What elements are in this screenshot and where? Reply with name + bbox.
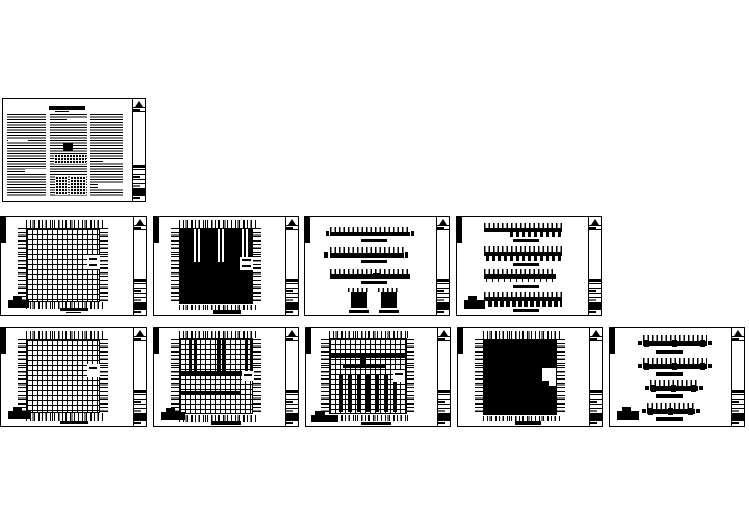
title-block-cell xyxy=(286,302,298,309)
title-block-text-blob xyxy=(134,290,141,292)
binding-mark xyxy=(305,217,310,243)
title-block-spacer xyxy=(286,230,298,279)
binding-mark xyxy=(610,328,615,354)
elevation-bar xyxy=(330,253,404,258)
title-block-cell xyxy=(286,420,298,426)
drawing-title-blob xyxy=(361,422,391,425)
dimension-ticks-right xyxy=(100,228,108,302)
dimension-ticks-right xyxy=(100,339,108,413)
title-block-text-blob xyxy=(589,299,596,301)
drawing-title-blob xyxy=(361,281,387,284)
title-block-text-blob xyxy=(286,227,293,229)
title-block-logo-cell xyxy=(437,217,449,226)
elevation-end-mark xyxy=(696,409,700,413)
title-block-spacer xyxy=(134,341,146,390)
dimension-ticks-top xyxy=(329,331,409,338)
drawing-title-blob xyxy=(656,372,683,376)
drawing-title-blob xyxy=(213,310,241,314)
drawing-title-blob xyxy=(349,310,369,313)
notes-figure-blob xyxy=(63,143,73,151)
triangle-logo-icon xyxy=(439,219,447,225)
elevation-end-mark xyxy=(638,341,642,345)
title-block-text-blob xyxy=(133,197,140,199)
drawing-title-blob xyxy=(513,263,539,266)
plan-column-bar xyxy=(194,338,197,372)
triangle-logo-icon xyxy=(135,101,143,107)
elevation-end-mark xyxy=(699,386,703,390)
dimension-ticks-bottom xyxy=(26,413,104,421)
plan-white-line xyxy=(198,229,200,262)
dimension-ticks-right xyxy=(253,228,261,303)
notch-label-blob xyxy=(89,258,97,260)
drawing-title-blob xyxy=(211,421,241,425)
elevation-end-mark xyxy=(708,341,712,345)
title-block-text-blob xyxy=(134,401,141,403)
title-block-text-blob xyxy=(732,401,739,403)
plan-column-bar xyxy=(245,338,248,372)
title-block-cell xyxy=(134,420,146,426)
elevation-end-mark xyxy=(642,409,646,413)
title-block-text-blob xyxy=(286,401,293,403)
dimension-ticks-left xyxy=(171,339,179,413)
sheet-heading-blob xyxy=(49,106,85,110)
title-block-text-blob xyxy=(134,410,141,412)
binding-mark xyxy=(1,328,6,354)
plan-beam-band xyxy=(179,391,241,395)
plan-white-line xyxy=(194,229,196,262)
title-block-text-blob xyxy=(286,311,293,313)
drawing-title-blob xyxy=(379,310,399,313)
dimension-ticks-left xyxy=(321,339,329,414)
elevation-blob xyxy=(688,408,693,415)
title-block xyxy=(133,328,146,426)
triangle-logo-icon xyxy=(440,330,448,336)
title-block-spacer xyxy=(732,341,744,390)
title-block-text-blob xyxy=(134,299,141,301)
title-block xyxy=(285,217,298,315)
dimension-ticks-bottom xyxy=(329,415,409,421)
title-block-logo-cell xyxy=(438,328,450,337)
title-block-logo-cell xyxy=(286,217,298,226)
drawing-title-blob xyxy=(361,260,387,263)
elevation-blob xyxy=(672,340,677,347)
title-block-text-blob xyxy=(437,299,444,301)
title-block-text-blob xyxy=(590,410,597,412)
notes-text-column xyxy=(7,114,46,196)
elevation-blob xyxy=(671,385,676,392)
dimension-ticks-top xyxy=(26,220,104,228)
title-block-text-blob xyxy=(590,422,597,424)
notch-label-blob xyxy=(242,259,251,261)
elevation-blob xyxy=(700,363,705,370)
sheet-heading-underline xyxy=(55,111,69,112)
dimension-ticks-left xyxy=(18,339,26,413)
title-block-spacer xyxy=(590,341,602,390)
title-block-text-blob xyxy=(732,410,739,412)
title-block xyxy=(436,217,449,315)
drawing-title-blob xyxy=(60,308,88,311)
title-block-text-blob xyxy=(438,338,445,340)
notch-label-blob xyxy=(395,373,403,375)
dimension-ticks-top xyxy=(483,331,561,339)
title-block-logo-cell xyxy=(589,217,601,226)
title-block-cell xyxy=(590,413,602,420)
title-block-cell xyxy=(134,302,146,309)
title-block-cell xyxy=(134,309,146,315)
legend-block xyxy=(464,300,485,309)
elevation-bar xyxy=(330,232,410,236)
elevation-end-mark xyxy=(708,364,712,368)
notch-label-blob xyxy=(89,264,97,266)
elevation-window-row xyxy=(486,256,562,261)
title-block-text-blob xyxy=(590,401,597,403)
plan-column-bar xyxy=(384,374,388,412)
title-block-text-blob xyxy=(134,311,141,313)
elevation-end-mark xyxy=(645,386,649,390)
drawing-title-blob xyxy=(60,421,88,424)
detail-figure xyxy=(381,292,397,308)
plan-white-line xyxy=(222,229,224,262)
sheet-08-grid-plan-columns xyxy=(305,327,451,427)
drawing-set-canvas xyxy=(0,0,749,530)
title-block-cell xyxy=(438,420,450,426)
drawing-title-blob xyxy=(513,309,539,312)
text-gap xyxy=(98,184,123,188)
notch-label-blob xyxy=(244,374,252,376)
elevation-blob xyxy=(644,363,649,370)
triangle-logo-icon xyxy=(288,330,296,336)
title-block-cell xyxy=(732,413,744,420)
text-gap xyxy=(8,139,28,142)
drawing-title-blob xyxy=(656,417,683,421)
title-block-cell xyxy=(438,413,450,420)
sheet-10-elevations xyxy=(609,327,745,427)
elevation-end-mark xyxy=(326,231,329,236)
binding-mark xyxy=(306,328,311,354)
drawing-title-blob xyxy=(656,394,683,398)
elevation-end-mark xyxy=(638,364,642,368)
title-block-logo-cell xyxy=(590,328,602,337)
legend-block xyxy=(161,412,185,420)
title-block-text-blob xyxy=(437,311,444,313)
binding-mark xyxy=(154,217,159,243)
title-block xyxy=(437,328,450,426)
title-block-text-blob xyxy=(437,227,444,229)
title-block-logo-cell xyxy=(134,328,146,337)
elevation-bar xyxy=(330,274,410,279)
dimension-ticks-top xyxy=(179,220,257,228)
title-block-cell xyxy=(732,420,744,426)
notch-label-blob xyxy=(89,367,97,369)
title-block-text-blob xyxy=(732,338,739,340)
notes-table xyxy=(54,154,86,164)
text-gap xyxy=(103,159,123,162)
triangle-logo-icon xyxy=(734,330,742,336)
title-block xyxy=(589,328,602,426)
drawing-title-blob xyxy=(361,239,387,242)
title-block-logo-cell xyxy=(134,217,146,226)
title-block-text-blob xyxy=(438,422,445,424)
binding-mark xyxy=(154,328,159,354)
title-block-text-blob xyxy=(286,410,293,412)
title-block-spacer xyxy=(437,230,449,279)
title-block-cell xyxy=(437,309,449,315)
title-block-cell xyxy=(589,302,601,309)
notes-table xyxy=(55,176,68,195)
text-gap xyxy=(67,119,87,122)
title-block-logo-cell xyxy=(732,328,744,337)
title-block-text-blob xyxy=(438,410,445,412)
plan-beam-band xyxy=(329,353,407,358)
title-block-text-blob xyxy=(286,422,293,424)
title-block-cell xyxy=(134,413,146,420)
dimension-ticks-right xyxy=(253,339,261,413)
title-block-text-blob xyxy=(134,422,141,424)
triangle-logo-icon xyxy=(288,219,296,225)
title-block-logo-cell xyxy=(286,328,298,337)
title-block xyxy=(285,328,298,426)
title-block-cell xyxy=(589,309,601,315)
plan-column-bar xyxy=(366,374,370,412)
legend-block xyxy=(311,415,338,422)
dimension-ticks-top xyxy=(179,331,257,338)
drawing-title-underline xyxy=(66,312,81,313)
plan-notch xyxy=(87,364,100,377)
title-block-text-blob xyxy=(133,176,140,178)
plan-column-bar xyxy=(250,338,253,372)
title-block-spacer xyxy=(589,230,601,279)
triangle-logo-icon xyxy=(136,330,144,336)
title-block-text-blob xyxy=(286,290,293,292)
plan-column-bar xyxy=(357,374,361,412)
elevation-mark-row xyxy=(486,279,554,282)
title-block-cell xyxy=(286,413,298,420)
title-block-cell xyxy=(590,420,602,426)
title-block-spacer xyxy=(134,230,146,279)
dimension-ticks-left xyxy=(171,228,179,303)
title-block-text-blob xyxy=(134,227,141,229)
elevation-blob xyxy=(651,385,656,392)
dimension-ticks-right xyxy=(407,339,414,414)
plan-white-line xyxy=(218,229,220,262)
legend-block xyxy=(8,411,31,419)
plan-notch-extension xyxy=(549,381,556,386)
dimension-ticks-right xyxy=(557,339,565,414)
drawing-title-blob xyxy=(513,285,539,288)
sheet-07-grid-plan-bands xyxy=(153,327,299,427)
plan-column-bar xyxy=(348,374,352,412)
title-block xyxy=(731,328,744,426)
notes-table xyxy=(70,176,86,195)
title-block-cell xyxy=(437,302,449,309)
dimension-ticks-left xyxy=(475,339,483,414)
title-block-cell xyxy=(286,309,298,315)
elevation-window-row xyxy=(510,232,562,237)
elevation-blob xyxy=(373,273,380,279)
binding-mark xyxy=(458,328,463,354)
title-block-text-blob xyxy=(133,185,140,187)
sheet-02-grid-plan xyxy=(0,216,147,316)
plan-column-bar xyxy=(217,338,220,372)
plan-notch xyxy=(242,371,254,381)
title-block xyxy=(132,99,145,201)
title-block-cell xyxy=(133,195,145,201)
plan-column-bar xyxy=(375,374,379,412)
triangle-logo-icon xyxy=(136,219,144,225)
sheet-01-general-notes xyxy=(2,98,146,202)
title-block-text-blob xyxy=(286,299,293,301)
title-block-text-blob xyxy=(732,422,739,424)
title-block xyxy=(133,217,146,315)
title-block-spacer xyxy=(438,341,450,390)
plan-column-bar xyxy=(222,338,225,372)
binding-mark xyxy=(457,217,462,243)
title-block-text-blob xyxy=(589,311,596,313)
dimension-ticks-left xyxy=(18,228,26,302)
title-block-text-blob xyxy=(133,109,140,111)
sheet-03-filled-plan xyxy=(153,216,299,316)
elevation-end-mark xyxy=(411,231,414,236)
triangle-logo-icon xyxy=(591,219,599,225)
plan-column-bar xyxy=(339,374,343,412)
title-block-text-blob xyxy=(134,338,141,340)
sheet-05-elevations xyxy=(456,216,602,316)
elevation-blob xyxy=(700,340,705,347)
title-block xyxy=(588,217,601,315)
notch-label-blob xyxy=(242,265,251,267)
sheet-09-filled-plan xyxy=(457,327,603,427)
title-block-text-blob xyxy=(590,338,597,340)
text-gap xyxy=(25,169,46,173)
title-block-text-blob xyxy=(437,290,444,292)
title-block-text-blob xyxy=(286,338,293,340)
elevation-blob xyxy=(691,385,696,392)
dimension-ticks-top xyxy=(26,331,104,339)
drawing-title-blob xyxy=(513,239,539,242)
elevation-end-mark xyxy=(324,252,328,258)
drawing-title-blob xyxy=(656,350,683,354)
elevation-blob xyxy=(668,408,673,415)
drawing-title-blob xyxy=(515,421,541,425)
title-block-text-blob xyxy=(589,227,596,229)
binding-mark xyxy=(1,217,6,243)
title-block-text-blob xyxy=(589,290,596,292)
legend-block xyxy=(8,300,29,308)
detail-figure xyxy=(351,292,367,308)
plan-column-bar xyxy=(189,338,192,372)
triangle-logo-icon xyxy=(592,330,600,336)
elevation-block-row xyxy=(488,301,562,307)
sheet-04-elevations xyxy=(304,216,450,316)
title-block-text-blob xyxy=(438,401,445,403)
plan-notch xyxy=(542,368,556,381)
sheet-06-grid-plan xyxy=(0,327,147,427)
elevation-blob xyxy=(644,340,649,347)
title-block-cell xyxy=(133,188,145,195)
plan-notch xyxy=(393,370,405,382)
elevation-blob xyxy=(672,363,677,370)
title-block-spacer xyxy=(133,112,145,165)
title-block-logo-cell xyxy=(133,99,145,108)
legend-block xyxy=(617,411,639,420)
plan-beam-stub xyxy=(361,353,366,368)
title-block-spacer xyxy=(286,341,298,390)
elevation-blob xyxy=(648,408,653,415)
elevation-end-mark xyxy=(405,252,408,258)
